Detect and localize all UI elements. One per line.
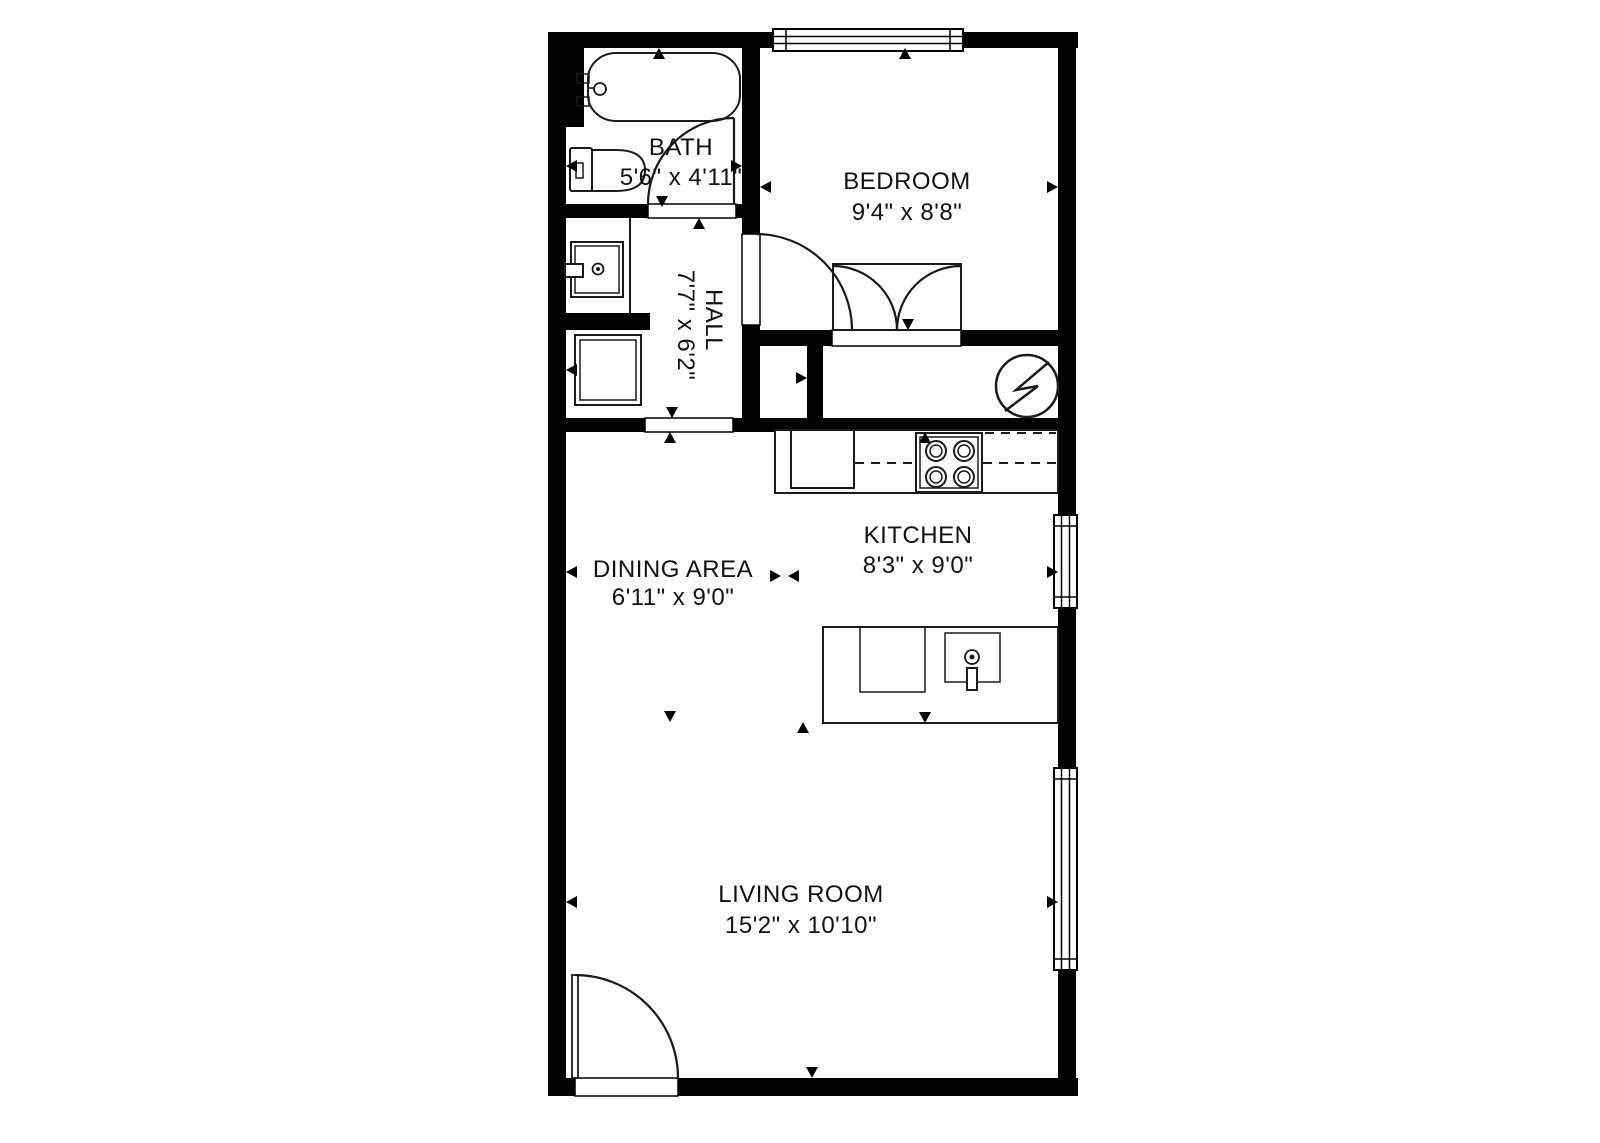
arrow-left-icon — [788, 570, 799, 582]
arrow-right-icon — [1047, 181, 1058, 193]
wall-left — [548, 32, 566, 1096]
sink-vanity — [565, 242, 623, 297]
wall-hall-bottom-left — [548, 418, 645, 432]
bedroom-door-opening — [742, 234, 760, 325]
washer — [575, 335, 641, 405]
wall-bath-bottom-nub — [736, 204, 742, 218]
wall-bath-bottom — [566, 204, 648, 218]
arrow-left-icon — [566, 566, 577, 578]
arrow-left-icon — [566, 896, 577, 908]
floor-plan-drawing: BATH 5'6" x 4'11" BEDROOM 9'4" x 8'8" HA… — [0, 0, 1600, 1143]
wall-hall-divider — [548, 313, 650, 330]
living-room-window — [1054, 768, 1077, 970]
wall-bath-chase — [566, 32, 584, 127]
kitchen-island — [823, 627, 1058, 723]
wall-bath-bedroom-upper — [742, 48, 760, 234]
bedroom-window — [773, 29, 963, 51]
floor-plan: BATH 5'6" x 4'11" BEDROOM 9'4" x 8'8" HA… — [0, 0, 1600, 1143]
arrow-down-icon — [666, 407, 678, 418]
dining-area-label: DINING AREA — [593, 556, 753, 583]
hall-label: HALL — [700, 289, 727, 351]
room-labels: BATH 5'6" x 4'11" BEDROOM 9'4" x 8'8" HA… — [593, 134, 973, 939]
kitchen-label: KITCHEN — [864, 522, 973, 549]
bath-label: BATH — [649, 134, 713, 161]
kitchen-dimensions: 8'3" x 9'0" — [863, 552, 973, 579]
arrow-up-icon — [664, 432, 676, 443]
arrow-down-icon — [806, 1067, 818, 1078]
wall-bath-bedroom-lower — [742, 325, 760, 432]
kitchen-window — [1054, 515, 1077, 608]
arrow-right-icon — [796, 372, 807, 384]
arrow-left-icon — [566, 364, 577, 376]
entry-door-opening — [575, 1078, 678, 1096]
tub-faucet-icon — [594, 83, 606, 95]
arrow-right-icon — [770, 570, 781, 582]
hall-dimensions: 7'7" x 6'2" — [672, 270, 699, 380]
hall-dining-opening — [645, 418, 733, 432]
arrow-down-icon — [902, 319, 914, 330]
bedroom-dimensions: 9'4" x 8'8" — [852, 199, 962, 226]
closet-opening — [832, 330, 961, 346]
arrow-up-icon — [797, 722, 809, 733]
bedroom-door — [756, 234, 852, 330]
living-room-dimensions: 15'2" x 10'10" — [725, 912, 877, 939]
wall-utility-divider — [807, 346, 823, 418]
bath-dimensions: 5'6" x 4'11" — [620, 164, 743, 191]
living-room-label: LIVING ROOM — [718, 881, 884, 908]
dining-area-dimensions: 6'11" x 9'0" — [612, 584, 735, 611]
kitchen-counter — [775, 430, 1058, 493]
refrigerator — [791, 430, 854, 488]
entry-door — [572, 975, 678, 1078]
bedroom-label: BEDROOM — [843, 168, 971, 195]
bathtub — [577, 53, 740, 121]
arrow-left-icon — [760, 181, 771, 193]
bath-door — [648, 118, 734, 204]
arrow-up-icon — [693, 218, 705, 229]
electrical-panel-icon — [996, 355, 1058, 417]
bath-door-opening — [648, 204, 736, 218]
arrow-down-icon — [664, 711, 676, 722]
